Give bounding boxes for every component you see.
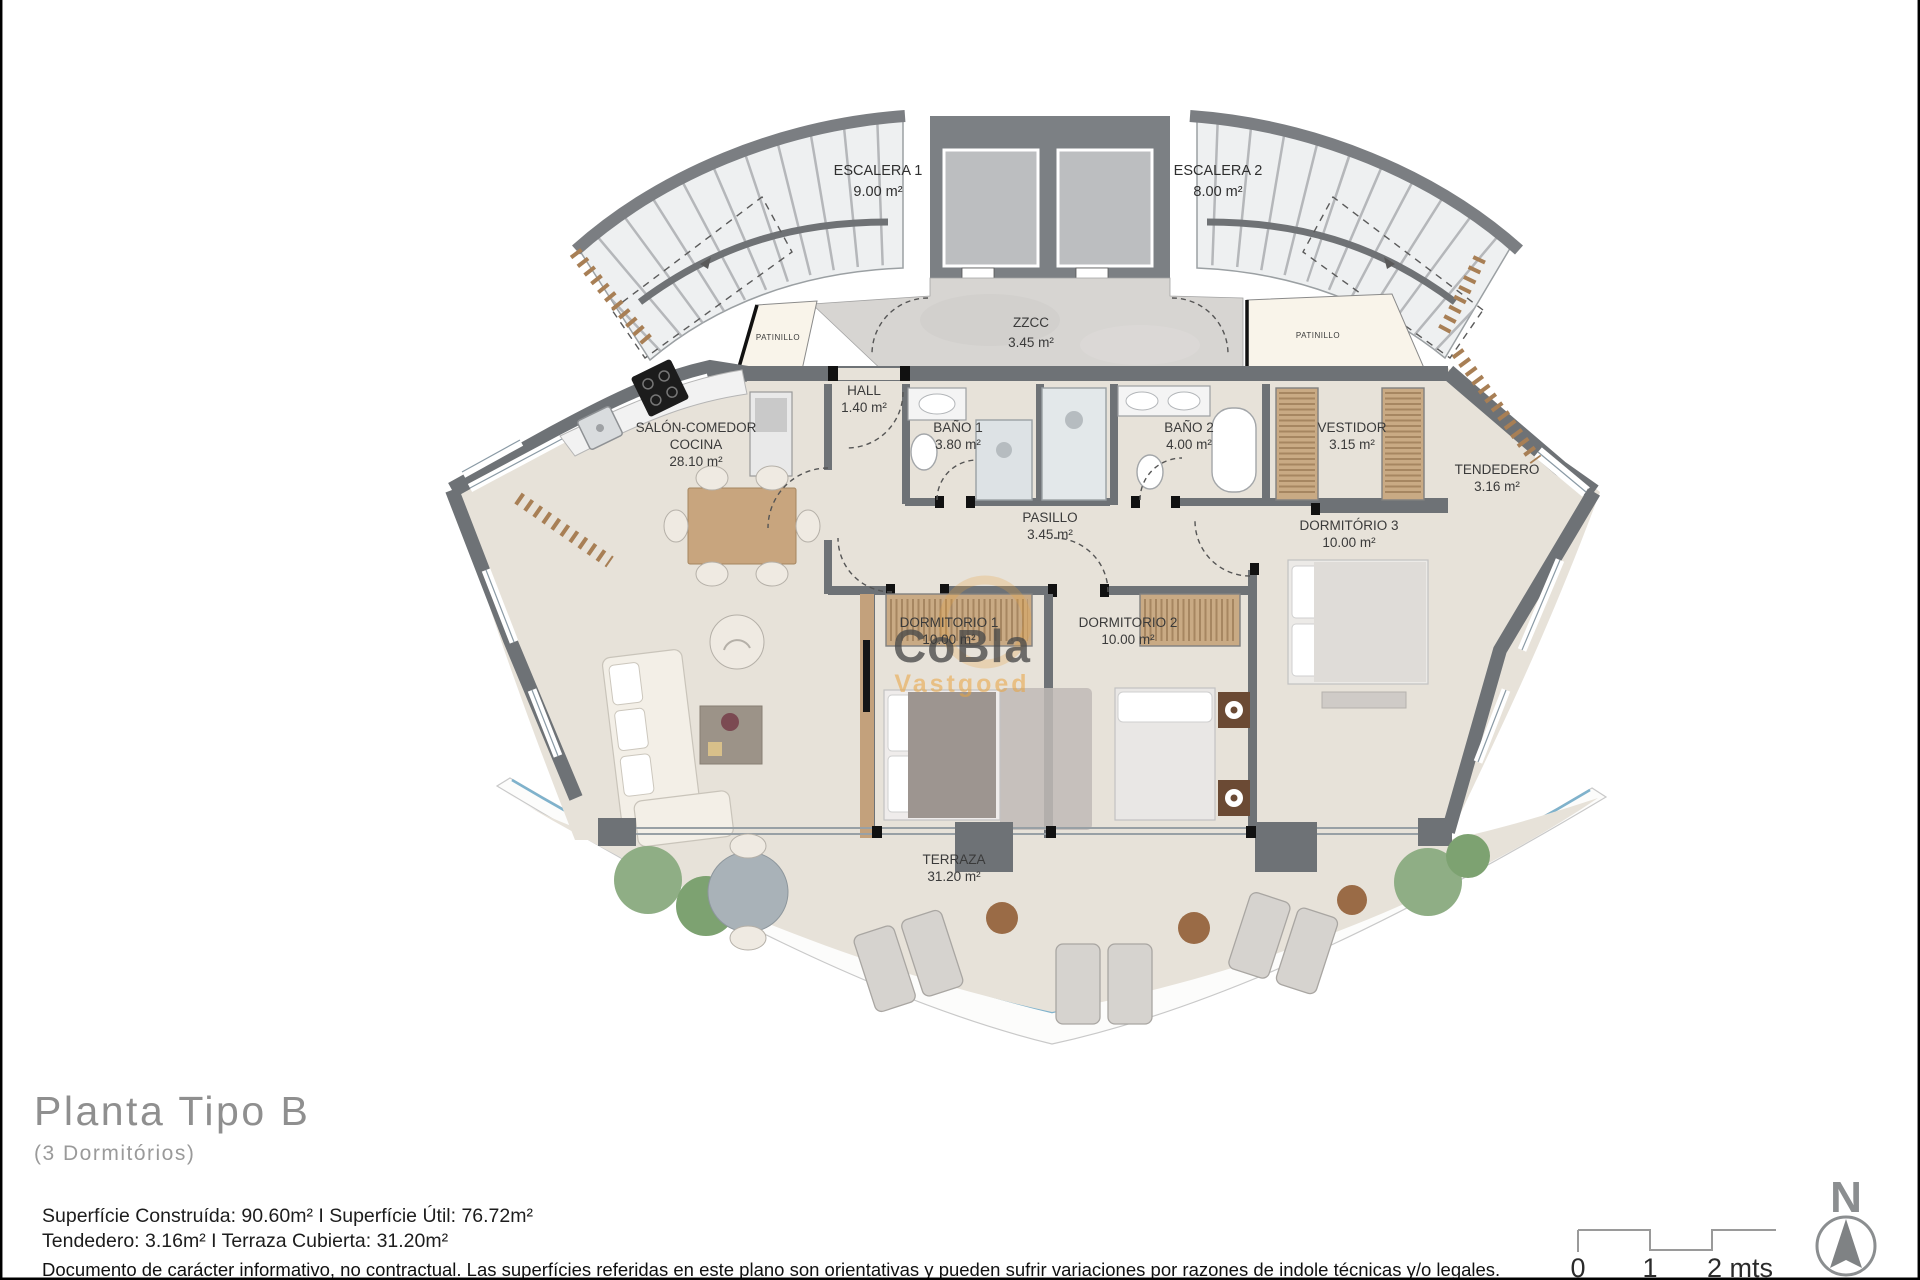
entrance-door-gap [838, 368, 900, 380]
dining-table [688, 488, 796, 564]
plant-right-2 [1446, 834, 1490, 878]
dorm2-pillows [1118, 692, 1212, 722]
dining-chair-1 [696, 466, 728, 490]
wall-bath-bottom-1 [905, 498, 937, 506]
glass-jamb-1 [872, 826, 882, 838]
bano1-shower [976, 420, 1032, 500]
label-terraza-name: TERRAZA [922, 852, 985, 867]
wall-dorm3-top [1320, 505, 1448, 513]
plan-subtitle: (3 Dormitórios) [34, 1142, 195, 1165]
wall-hall-left-lower [824, 540, 832, 594]
armchair [710, 615, 764, 669]
coffee-table-plant [721, 713, 739, 731]
bano2-basin-2 [1168, 392, 1200, 410]
dorm1-duvet [908, 692, 996, 818]
shower-cell [1042, 388, 1106, 500]
terrace-chair-2 [730, 926, 766, 950]
disclaimer-text: Documento de carácter informativo, no co… [42, 1259, 1500, 1280]
elevator-core [930, 116, 1170, 280]
title-block: Planta Tipo B (3 Dormitórios) Superfície… [34, 1088, 1500, 1280]
label-zzcc-area: 3.45 m² [1008, 335, 1054, 350]
entrance-jamb-left [828, 366, 838, 381]
floor-plan-canvas: CoBla Vastgoed ESCALERA 1 9.00 m² ESCALE… [0, 0, 1920, 1280]
jamb-bano1b [966, 496, 975, 508]
dorm1-rug [1000, 688, 1092, 830]
glass-jamb-2 [1046, 826, 1056, 838]
glass-jamb-3 [1246, 826, 1256, 838]
coffee-table-book [708, 742, 722, 756]
label-zzcc-name: ZZCC [1013, 315, 1049, 330]
terrace-chair-1 [730, 834, 766, 858]
dorm2-nightstand-2-lamp-core [1231, 795, 1238, 802]
label-tendedero-name: TENDEDERO [1455, 462, 1540, 477]
label-dormitorio1-name: DORMITORIO 1 [900, 615, 999, 630]
plan-title: Planta Tipo B [34, 1088, 310, 1134]
wall-shower-bano2 [1110, 384, 1118, 505]
tv-cabinet [860, 594, 874, 838]
scale-bar-line [1578, 1230, 1776, 1252]
dining-chair-2 [756, 466, 788, 490]
pier-left-end [598, 818, 636, 846]
label-salon-line1: SALÓN-COMEDOR [636, 420, 757, 435]
label-dormitorio3-area: 10.00 m² [1322, 535, 1376, 550]
plant-left-1 [614, 846, 682, 914]
dorm3-duvet [1314, 562, 1426, 682]
bano2-bathtub [1212, 408, 1256, 492]
dining-chair-6 [796, 510, 820, 542]
bano2-basin-1 [1126, 392, 1158, 410]
bano1-toilet [911, 434, 937, 470]
pier-center-2 [1255, 822, 1317, 872]
jamb-bano2 [1131, 496, 1140, 508]
scale-label-0: 0 [1570, 1253, 1585, 1280]
label-escalera2-area: 8.00 m² [1193, 184, 1242, 200]
dorm2-nightstand-1-lamp-core [1231, 707, 1238, 714]
label-patinillo-left: PATINILLO [756, 333, 800, 342]
jamb-bano2b [1171, 496, 1180, 508]
dining-chair-4 [756, 562, 788, 586]
label-tendedero-area: 3.16 m² [1474, 479, 1520, 494]
bano1-basin [919, 394, 955, 414]
north-compass: N [1817, 1173, 1875, 1275]
dining-chair-5 [664, 510, 688, 542]
label-vestidor-area: 3.15 m² [1329, 437, 1375, 452]
wall-bano2-vestidor [1262, 384, 1270, 505]
shower-cell-drain [1065, 411, 1083, 429]
pier-right-end [1418, 818, 1452, 846]
lounger-side-table-1 [986, 902, 1018, 934]
label-bano1-area: 3.80 m² [935, 437, 981, 452]
north-arrow-icon [1830, 1219, 1862, 1268]
label-vestidor-name: VESTIDOR [1317, 420, 1386, 435]
label-bano2-name: BAÑO 2 [1164, 420, 1214, 435]
label-escalera1-name: ESCALERA 1 [834, 163, 923, 179]
lounger-side-table-3 [1337, 885, 1367, 915]
jamb-bano1 [935, 496, 944, 508]
label-hall-area: 1.40 m² [841, 400, 887, 415]
label-bano2-area: 4.00 m² [1166, 437, 1212, 452]
label-pasillo-area: 3.45 m² [1027, 527, 1073, 542]
areas-line2: Tendedero: 3.16m² I Terraza Cubierta: 31… [42, 1230, 449, 1252]
jamb-dorm3 [1250, 563, 1259, 575]
entrance-jamb-right [900, 366, 910, 381]
label-dormitorio2-name: DORMITORIO 2 [1079, 615, 1178, 630]
label-patinillo-right: PATINILLO [1296, 331, 1340, 340]
zzcc-texture-2 [1080, 325, 1200, 365]
scale-label-2: 2 mts [1707, 1253, 1773, 1280]
areas-line1: Superfície Construída: 90.60m² I Superfí… [42, 1204, 533, 1227]
label-pasillo-name: PASILLO [1022, 510, 1077, 525]
label-dormitorio2-area: 10.00 m² [1101, 632, 1155, 647]
elevator-cab-1 [944, 150, 1038, 266]
watermark-line2: Vastgoed [894, 670, 1029, 698]
label-salon-line2: COCINA [670, 437, 723, 452]
scale-bar: 0 1 2 mts [1570, 1230, 1776, 1280]
dining-chair-3 [696, 562, 728, 586]
label-salon-area: 28.10 m² [669, 454, 723, 469]
terrace-round-table [708, 852, 788, 932]
floor-plan-page: CoBla Vastgoed ESCALERA 1 9.00 m² ESCALE… [0, 0, 1920, 1280]
kitchen-appliance [755, 398, 787, 432]
wall-hall-left-upper [824, 384, 832, 470]
north-letter: N [1830, 1173, 1862, 1222]
jamb-dorm3b [1311, 503, 1320, 515]
label-dormitorio1-area: 10.00 m² [922, 632, 976, 647]
elevator-cab-2 [1058, 150, 1152, 266]
bano1-shower-drain [996, 442, 1012, 458]
scale-label-1: 1 [1642, 1253, 1657, 1280]
tv-screen [863, 640, 870, 712]
label-escalera2-name: ESCALERA 2 [1174, 163, 1263, 179]
label-hall-name: HALL [847, 383, 881, 398]
dorm3-bench [1322, 692, 1406, 708]
label-bano1-name: BAÑO 1 [933, 420, 983, 435]
label-terraza-area: 31.20 m² [927, 869, 981, 884]
lounger-side-table-2 [1178, 912, 1210, 944]
label-escalera1-area: 9.00 m² [853, 184, 902, 200]
label-dormitorio3-name: DORMITÓRIO 3 [1299, 518, 1398, 533]
